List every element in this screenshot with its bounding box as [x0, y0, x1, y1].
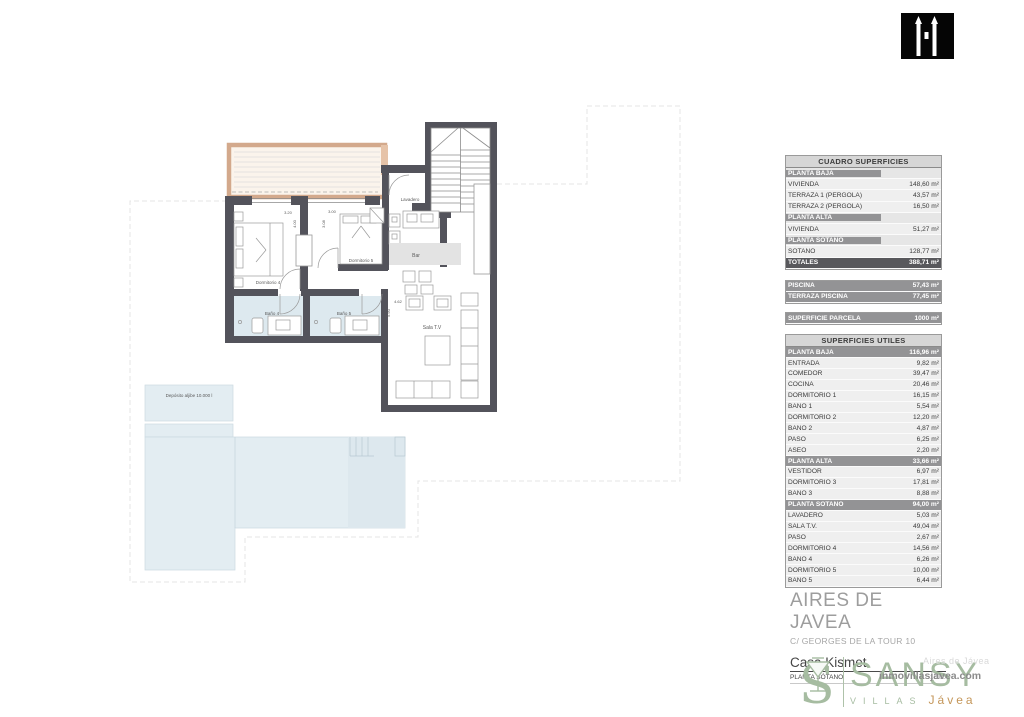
table-row: DORMITORIO 317,81 m² [786, 478, 941, 489]
row-value: 4,87 m² [917, 425, 941, 432]
table-row: BAÑO 15,54 m² [786, 402, 941, 413]
row-label: PLANTA SÓTANO [786, 237, 881, 244]
watermark-url: inmovillasjavea.com [879, 670, 981, 682]
row-value: 16,15 m² [913, 392, 941, 399]
row-label: ENTRADA [786, 360, 917, 367]
bed-dormitorio-5 [340, 208, 384, 264]
table-row: PISCINA57,43 m² [786, 281, 941, 292]
bano4-label: Baño 4 [265, 311, 280, 316]
bar-label: Bar [412, 253, 420, 259]
row-label: VIVIENDA [786, 226, 913, 233]
table-row: ENTRADA9,82 m² [786, 358, 941, 369]
dim-4-62: 4.62 [394, 299, 403, 304]
row-label: PLANTA SOTANO [786, 501, 913, 508]
row-value: 6,25 m² [917, 436, 941, 443]
row-value: 57,43 m² [913, 282, 941, 289]
row-label: TERRAZA 2 (PERGOLA) [786, 203, 913, 210]
table-row: SUPERFICIE PARCELA1000 m² [786, 313, 941, 324]
brand-javea-label: Jávea [929, 694, 976, 706]
row-label: COCINA [786, 381, 913, 388]
table-row: VESTIDOR6,97 m² [786, 467, 941, 478]
row-value: 12,20 m² [913, 414, 941, 421]
row-label: VIVIENDA [786, 181, 909, 188]
pergola-terrace [229, 145, 388, 197]
row-value: 6,97 m² [917, 468, 941, 475]
table-row: SOTANO128,77 m² [786, 246, 941, 257]
row-label: PLANTA ALTA [786, 458, 913, 465]
project-address: C/ GEORGES DE LA TOUR 10 [790, 636, 946, 646]
row-value: 10,00 m² [913, 567, 941, 574]
row-value: 51,27 m² [913, 226, 941, 233]
row-value: 33,66 m² [913, 458, 941, 465]
row-value: 2,20 m² [917, 447, 941, 454]
brand-divider [843, 657, 844, 707]
table-row: BAÑO 24,87 m² [786, 423, 941, 434]
table-row: DORMITORIO 510,00 m² [786, 565, 941, 576]
table-row: PASO2,67 m² [786, 532, 941, 543]
table-row: TERRAZA 2 (PERGOLA)16,50 m² [786, 202, 941, 213]
dim-3-08: 3.08 [321, 219, 326, 228]
row-value: 43,57 m² [913, 192, 941, 199]
row-label: PASO [786, 534, 917, 541]
row-label: DORMITORIO 3 [786, 479, 913, 486]
row-label: DORMITORIO 2 [786, 414, 913, 421]
tv-lounge-furniture [396, 293, 478, 398]
row-value: 148,60 m² [909, 181, 941, 188]
row-value: 14,56 m² [913, 545, 941, 552]
sala-tv-label: Sala T.V [423, 325, 442, 331]
row-value: 2,67 m² [917, 534, 941, 541]
row-label: TERRAZA PISCINA [786, 293, 913, 300]
table-row: PLANTA BAJA [786, 168, 941, 179]
table-row: TOTALES388,71 m² [786, 258, 941, 269]
brand-villas-label: VILLAS [850, 697, 923, 706]
table-row: VIVIENDA148,60 m² [786, 179, 941, 190]
row-value: 5,03 m² [917, 512, 941, 519]
dormitorio5-label: Dormitorio 5 [349, 258, 374, 263]
row-label: PLANTA ALTA [786, 214, 881, 221]
table-row: PLANTA SOTANO94,00 m² [786, 500, 941, 511]
table-row: COCINA20,46 m² [786, 380, 941, 391]
utiles-table-title: SUPERFICIES UTILES [786, 335, 941, 347]
table-row: BAÑO 38,88 m² [786, 489, 941, 500]
bed-dormitorio-4 [234, 212, 283, 287]
row-value: 94,00 m² [913, 501, 941, 508]
sansy-s-monogram-icon: S [795, 653, 841, 711]
row-value: 49,04 m² [913, 523, 941, 530]
row-label: VESTIDOR [786, 468, 917, 475]
row-value: 5,54 m² [917, 403, 941, 410]
table-row: TERRAZA PISCINA77,45 m² [786, 292, 941, 303]
row-label: TERRAZA 1 (PERGOLA) [786, 192, 913, 199]
sansy-brand-logo: S SANSY VILLAS Jávea Aires de Jávea inmo… [795, 650, 1023, 714]
row-value: 16,50 m² [913, 203, 941, 210]
table-row: ASEO2,20 m² [786, 445, 941, 456]
row-label: BAÑO 5 [786, 577, 917, 584]
row-value: 388,71 m² [909, 259, 941, 266]
table-row: BAÑO 56,44 m² [786, 576, 941, 587]
row-label: PLANTA BAJA [786, 349, 909, 356]
row-label: SOTANO [786, 248, 909, 255]
row-label: PISCINA [786, 282, 913, 289]
row-label: PLANTA BAJA [786, 170, 881, 177]
row-label: ASEO [786, 447, 917, 454]
table-row: PLANTA SÓTANO [786, 235, 941, 246]
floor-plan-sheet: Depósito aljibe 10.000 l [0, 0, 1024, 717]
row-value: 77,45 m² [913, 293, 941, 300]
cuadro-superficies-table: CUADRO SUPERFICIES PLANTA BAJAVIVIENDA14… [785, 155, 942, 270]
table-row: COMEDOR39,47 m² [786, 369, 941, 380]
table-row: PLANTA ALTA [786, 213, 941, 224]
table-row: LAVADERO5,03 m² [786, 511, 941, 522]
table-row: DORMITORIO 414,56 m² [786, 543, 941, 554]
company-monogram-logo [901, 13, 954, 59]
dim-5-90: 5.90 [386, 308, 391, 317]
surface-tables: CUADRO SUPERFICIES PLANTA BAJAVIVIENDA14… [785, 155, 942, 588]
dim-3-20: 3.20 [284, 210, 293, 215]
row-value: 9,82 m² [917, 360, 941, 367]
wall-niche [474, 184, 490, 274]
table-row: DORMITORIO 116,15 m² [786, 391, 941, 402]
pool-area: Depósito aljibe 10.000 l [145, 385, 405, 570]
lavadero-label: Lavadero [401, 197, 420, 202]
row-value: 116,96 m² [909, 349, 941, 356]
row-value: 39,47 m² [913, 370, 941, 377]
watermark-aires: Aires de Jávea [923, 656, 990, 666]
row-label: TOTALES [786, 259, 909, 266]
table-row: VIVIENDA51,27 m² [786, 224, 941, 235]
superficies-utiles-table: SUPERFICIES UTILES PLANTA BAJA116,96 m²E… [785, 334, 942, 588]
row-label: BAÑO 4 [786, 556, 917, 563]
bano5-label: Baño 5 [337, 311, 352, 316]
table-row: TERRAZA 1 (PERGOLA)43,57 m² [786, 190, 941, 201]
row-value: 6,44 m² [917, 577, 941, 584]
table-row: BAÑO 46,26 m² [786, 554, 941, 565]
closet [296, 235, 312, 266]
row-label: DORMITORIO 4 [786, 545, 913, 552]
dormitorio4-label: Dormitorio 4 [256, 280, 281, 285]
row-value: 20,46 m² [913, 381, 941, 388]
row-value: 17,81 m² [913, 479, 941, 486]
parcela-table: SUPERFICIE PARCELA1000 m² [785, 312, 942, 325]
row-label: DORMITORIO 1 [786, 392, 913, 399]
laundry-bar-furniture [389, 211, 461, 294]
table-row: SALA T.V.49,04 m² [786, 522, 941, 533]
row-value: 6,26 m² [917, 556, 941, 563]
row-label: LAVADERO [786, 512, 917, 519]
row-label: BAÑO 2 [786, 425, 917, 432]
row-label: SUPERFICIE PARCELA [786, 315, 914, 322]
row-label: COMEDOR [786, 370, 913, 377]
table-row: DORMITORIO 212,20 m² [786, 413, 941, 424]
cuadro-table-title: CUADRO SUPERFICIES [786, 156, 941, 168]
project-name: AIRES DE JAVEA [790, 590, 946, 634]
row-value: 1000 m² [914, 315, 941, 322]
row-value: 128,77 m² [909, 248, 941, 255]
bar-counter [389, 243, 461, 265]
dim-3-00: 3.00 [328, 209, 337, 214]
table-row: PASO6,25 m² [786, 434, 941, 445]
dim-4-00: 4.00 [292, 219, 297, 228]
table-row: PLANTA BAJA116,96 m² [786, 347, 941, 358]
row-label: DORMITORIO 5 [786, 567, 913, 574]
deposito-label: Depósito aljibe 10.000 l [166, 393, 213, 398]
row-value: 8,88 m² [917, 490, 941, 497]
row-label: BAÑO 3 [786, 490, 917, 497]
row-label: SALA T.V. [786, 523, 913, 530]
table-row: PLANTA ALTA33,66 m² [786, 456, 941, 467]
row-label: BAÑO 1 [786, 403, 917, 410]
row-label: PASO [786, 436, 917, 443]
piscina-table: PISCINA57,43 m²TERRAZA PISCINA77,45 m² [785, 280, 942, 304]
